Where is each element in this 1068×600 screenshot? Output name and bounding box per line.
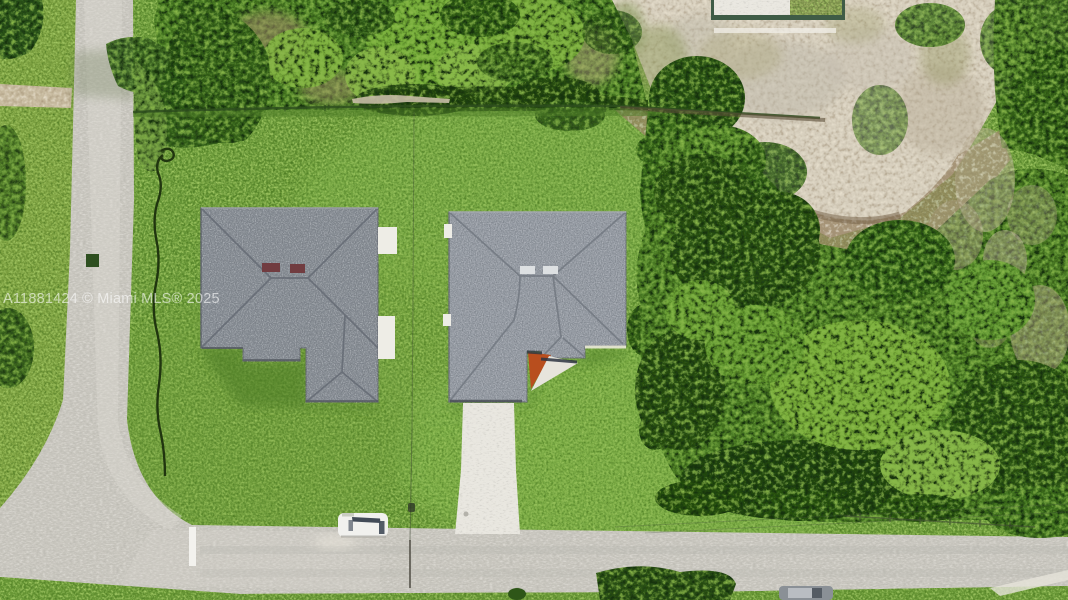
- svg-text:A11881424 © Miami MLS® 2025: A11881424 © Miami MLS® 2025: [3, 291, 220, 307]
